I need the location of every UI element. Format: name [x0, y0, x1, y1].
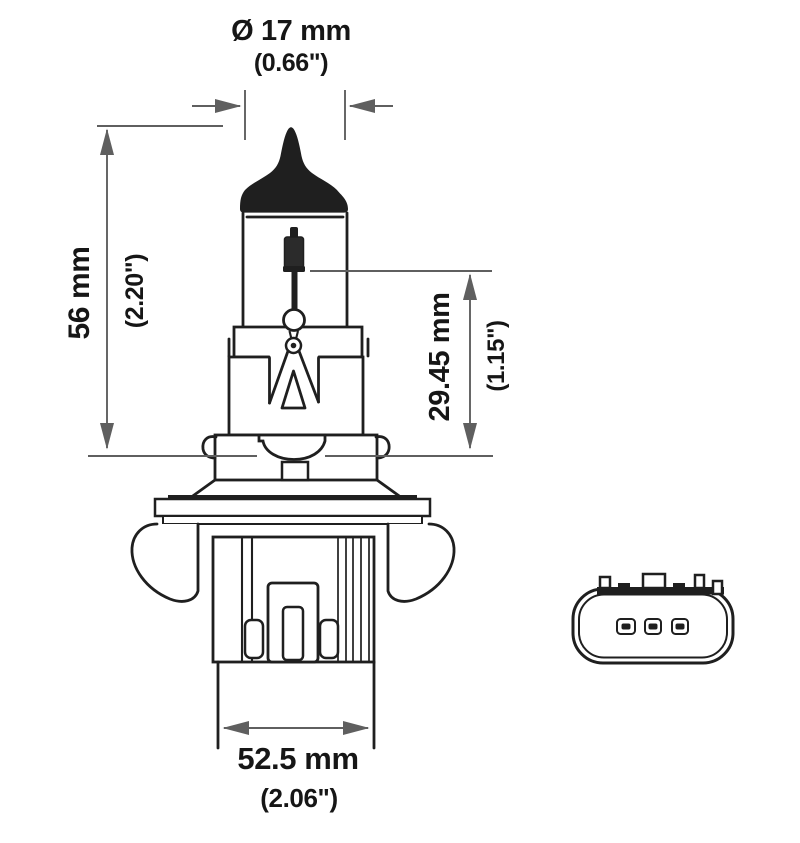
base-flange — [203, 435, 389, 480]
base-collar — [155, 480, 430, 524]
base-body — [213, 537, 374, 662]
label-base-width-inches: (2.06") — [209, 784, 389, 812]
connector-shroud — [218, 662, 374, 748]
drawing-canvas: Ø 17 mm (0.66") 56 mm (2.20") 29.45 mm (… — [0, 0, 800, 843]
label-diameter-mm: Ø 17 mm — [201, 16, 381, 47]
black-cap — [240, 127, 348, 212]
label-bulb-length-inches: (1.15") — [483, 299, 511, 413]
spring-wing-right — [388, 524, 454, 601]
label-base-width-mm: 52.5 mm — [208, 742, 388, 775]
dimension-overall-length — [97, 126, 223, 448]
bulb-side-view — [132, 127, 454, 748]
connector-pins — [617, 619, 688, 634]
connector-pin-1 — [617, 619, 635, 634]
label-diameter-inches: (0.66") — [201, 50, 381, 77]
label-overall-length-inches: (2.20") — [121, 233, 149, 349]
filament-assembly — [283, 227, 305, 311]
connector-pin-3 — [672, 619, 688, 634]
connector-pin-2 — [645, 619, 661, 634]
connector-top-tabs — [597, 574, 724, 595]
connector-face-view — [573, 574, 733, 663]
label-bulb-length-mm: 29.45 mm — [426, 277, 456, 437]
spring-wing-left — [132, 524, 198, 601]
bulb-diagram-svg — [0, 0, 800, 843]
label-overall-length-mm: 56 mm — [65, 233, 95, 353]
filament-support-loop — [284, 310, 305, 331]
